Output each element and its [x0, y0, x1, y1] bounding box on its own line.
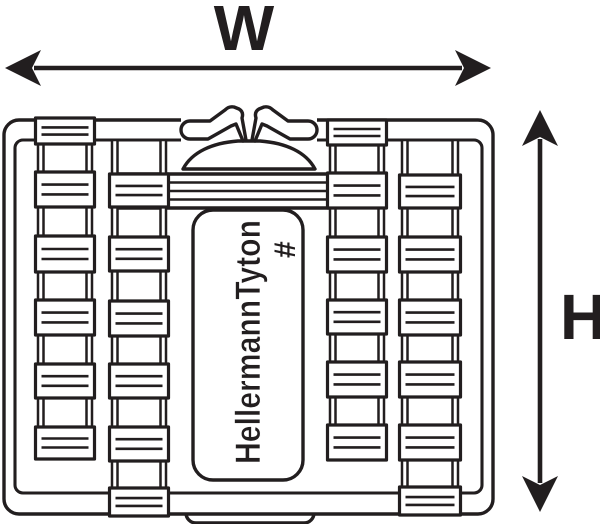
ladder-rung-block — [36, 118, 95, 144]
width-label: W — [214, 0, 275, 64]
ladder-rung-block — [400, 425, 461, 460]
ladder-rung-block — [328, 425, 387, 460]
height-dimension: H — [522, 110, 600, 512]
ladder-rung-block — [328, 237, 387, 272]
label-panel: HellermannTyton # — [193, 210, 303, 480]
ladder-rung-block — [36, 172, 95, 207]
ladder-column-4 — [400, 140, 461, 515]
ladder-rung-block — [328, 362, 387, 397]
ladder-rung-block — [400, 362, 461, 397]
ladder-rung-block — [110, 174, 169, 207]
ladder-column-2 — [110, 140, 169, 516]
ladder-rung-block — [328, 300, 387, 334]
ladder-rung-block — [110, 488, 169, 516]
brand-logo-icon: # — [269, 241, 302, 258]
ladder-rung-block — [328, 120, 387, 145]
cradle-device: HellermannTyton # — [4, 107, 493, 523]
ladder-rung-block — [110, 301, 169, 336]
ladder-rung-block — [36, 427, 95, 459]
ladder-rung-block — [36, 236, 95, 272]
width-dimension: W — [5, 0, 491, 86]
technical-drawing: W H Hell — [0, 0, 600, 524]
ladder-rung-block — [400, 175, 461, 208]
ladder-rung-block — [36, 364, 95, 398]
ladder-rung-block — [110, 364, 169, 398]
ladder-rung-block — [400, 237, 461, 272]
ladder-rung-block — [110, 427, 169, 461]
ladder-rung-block — [400, 487, 461, 515]
ladder-rung-block — [110, 237, 169, 271]
ladder-rung-block — [36, 300, 95, 335]
ladder-rung-block — [400, 300, 461, 335]
height-label: H — [560, 281, 600, 353]
brand-text: HellermannTyton — [229, 220, 268, 464]
ladder-rung-block — [328, 173, 387, 208]
